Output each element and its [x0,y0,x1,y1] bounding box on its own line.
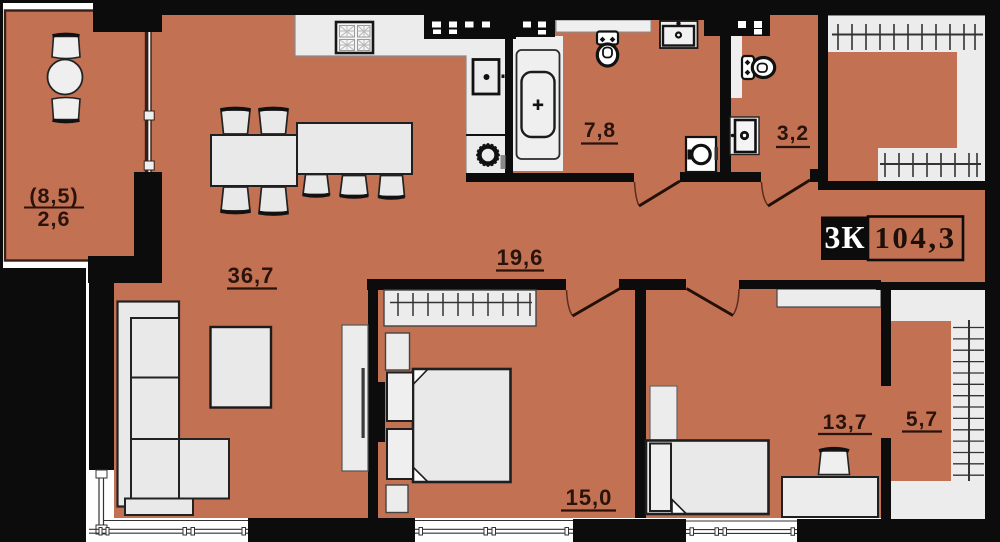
svg-text:5,7: 5,7 [906,408,938,431]
svg-text:3К: 3К [824,219,865,255]
svg-text:19,6: 19,6 [497,245,544,270]
svg-text:2,6: 2,6 [38,207,71,231]
svg-text:104,3: 104,3 [874,220,956,255]
svg-text:36,7: 36,7 [228,263,275,288]
svg-text:13,7: 13,7 [823,411,868,434]
svg-text:15,0: 15,0 [566,485,613,510]
svg-text:3,2: 3,2 [777,122,809,145]
svg-text:7,8: 7,8 [584,119,616,142]
svg-text:(8,5): (8,5) [29,184,78,208]
